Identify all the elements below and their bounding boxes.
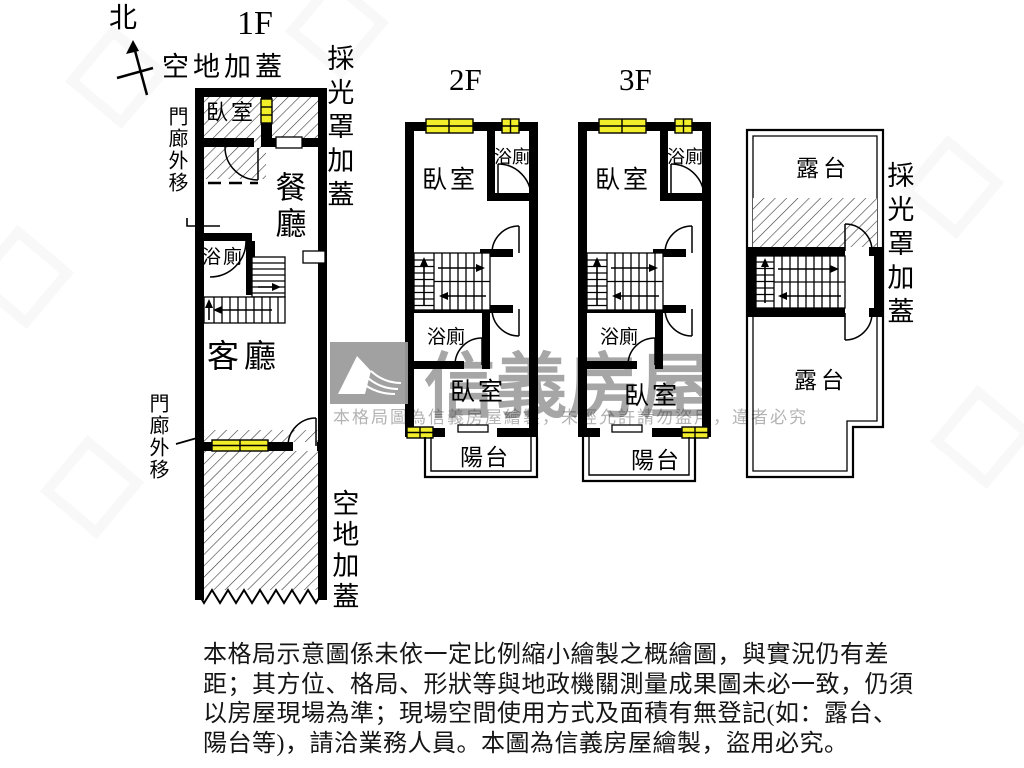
room-label-balcony-f2: 陽台 [460,446,510,470]
annotation-canopy-roof: 採光罩加蓋 [884,161,912,331]
floor3-title: 3F [619,64,652,97]
watermark-notice: 本格局圖為信義房屋繪製，未經允許請勿盜用，違者必究 [333,403,808,428]
room-label-living-f1: 客廳 [207,340,281,374]
stairs [756,256,845,308]
disclaimer-text: 本格局示意圖係未依一定比例縮小繪製之概繪圖，與實況仍有差 距；其方位、格局、形狀… [203,641,914,759]
room-label-dining-f1: 餐廳 [271,171,304,243]
hatch-area [753,198,877,247]
room-label-balcony-f3: 陽台 [631,449,681,473]
disclaimer-line: 本格局示意圖係未依一定比例縮小繪製之概繪圖，與實況仍有差 [203,641,914,671]
floor1-title: 1F [237,6,273,42]
floor2-title: 2F [449,64,482,97]
annotation-open-roof-bottom: 空地加蓋 [329,489,357,613]
hatch-area [204,451,318,590]
disclaimer-line: 距；其方位、格局、形狀等與地政機關測量成果圖未必一致，仍須 [203,671,914,701]
annotation-open-roof-top: 空地加蓋 [162,53,286,81]
room-label-terrace-bottom: 露台 [794,369,848,393]
room-label-bath-top-f2: 浴廁 [494,148,530,167]
window-opening [276,137,302,148]
window-opening [303,251,325,263]
room-label-bath-f1: 浴廁 [202,248,244,268]
north-arrow-icon [117,40,153,95]
sinyi-logo [330,342,408,404]
north-label: 北 [109,4,137,33]
door-gap [293,442,317,451]
room-label-bath-top-f3: 浴廁 [667,148,703,167]
open-area-zigzag-edge [196,590,324,603]
annotation-porch-bottom: 門廊外移 [146,393,167,481]
annotation-porch-top: 門廊外移 [165,106,186,194]
annotation-canopy-f1: 採光罩加蓋 [324,44,352,214]
room-label-bedroom-top-f2: 臥室 [422,168,478,194]
hatch-area [204,147,266,179]
room-label-bedroom-top-f3: 臥室 [595,168,651,194]
floorplan-page: 1F 2F 3F 北 空地加蓋 採光罩加蓋 門廊外移 門廊外移 空地加蓋 採光罩… [0,0,1024,768]
room-label-bedroom-f1: 臥室 [206,101,256,124]
disclaimer-line: 陽台等)，請洽業務人員。本圖為信義房屋繪製，盜用必究。 [203,730,914,760]
room-label-terrace-top: 露台 [796,157,850,181]
disclaimer-line: 以房屋現場為準；現場空間使用方式及面積有無登記(如：露台、 [203,700,914,730]
